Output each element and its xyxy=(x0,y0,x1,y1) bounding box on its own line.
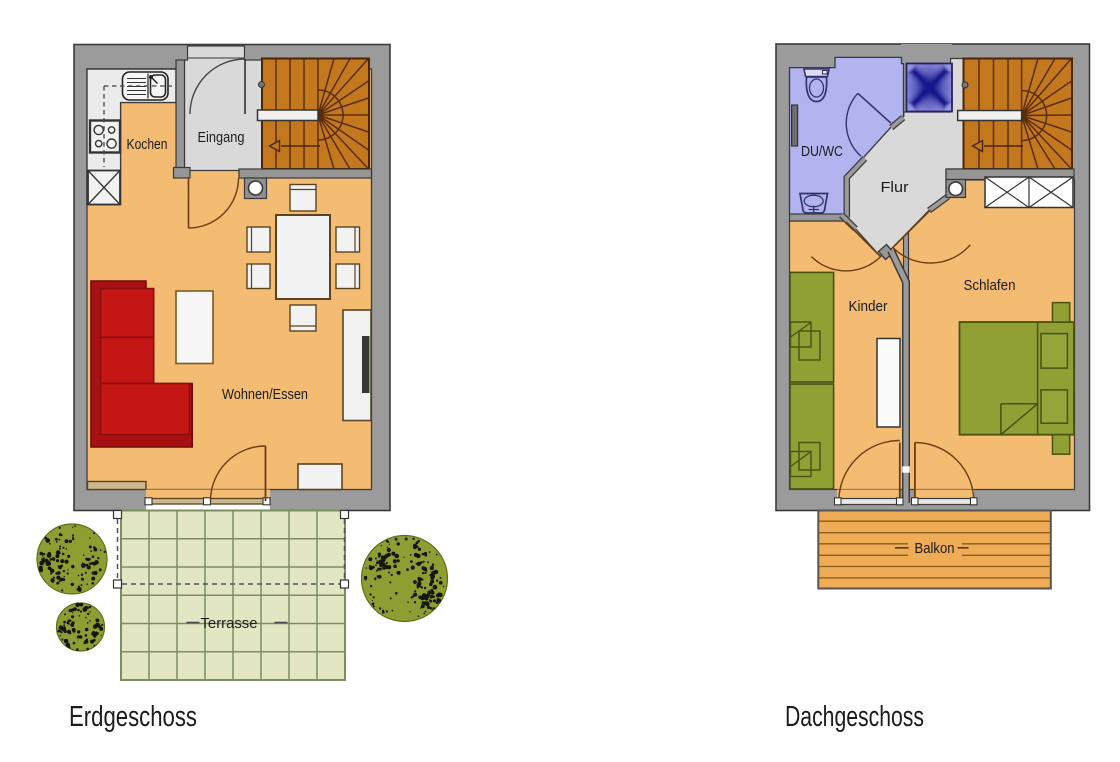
svg-text:Dachgeschoss: Dachgeschoss xyxy=(785,701,924,733)
svg-text:DU/WC: DU/WC xyxy=(801,143,843,160)
svg-text:Terrasse: Terrasse xyxy=(201,615,258,632)
svg-text:Wohnen/Essen: Wohnen/Essen xyxy=(222,386,308,403)
svg-text:Balkon: Balkon xyxy=(915,540,955,557)
svg-text:Erdgeschoss: Erdgeschoss xyxy=(69,701,197,733)
svg-text:Kochen: Kochen xyxy=(127,136,168,153)
svg-text:Kinder: Kinder xyxy=(849,298,888,315)
svg-text:Flur: Flur xyxy=(881,179,909,196)
svg-text:Eingang: Eingang xyxy=(198,130,245,146)
svg-text:Schlafen: Schlafen xyxy=(964,277,1016,294)
